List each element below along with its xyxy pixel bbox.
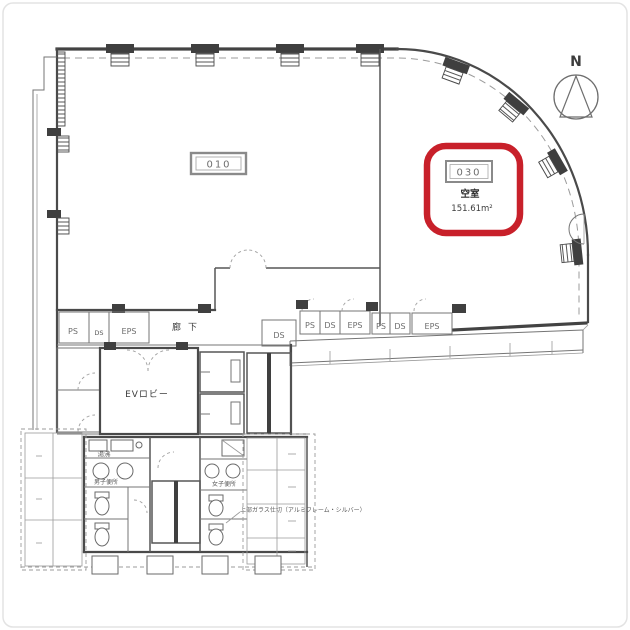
womens-toilet-label: 女子便所 xyxy=(212,480,236,488)
mens-toilet-label: 男子便所 xyxy=(94,478,118,486)
staircase-lower xyxy=(152,452,200,543)
double-door-arc xyxy=(230,250,248,268)
kitchenette: 湯沸 xyxy=(84,440,150,458)
partition-note-text: 上部ガラス仕切（アルミフレーム・シルバー） xyxy=(240,506,366,514)
compass-needle xyxy=(560,76,592,117)
utility-label-eps: EPS xyxy=(348,321,363,330)
utility-label-ds: DS xyxy=(394,322,405,331)
mens-toilet: 男子便所 xyxy=(84,463,150,552)
floor-plan-image: PS DS EPS 廊下 DS PS DS EPS PS DS EPS xyxy=(0,0,630,630)
duct-label-ds: DS xyxy=(273,331,284,340)
unit-area: 151.61m² xyxy=(451,204,492,214)
tenant-partitions xyxy=(215,49,380,326)
elevator-shaft xyxy=(200,394,244,434)
utility-label-ps: PS xyxy=(68,327,78,336)
vacant-unit-highlight[interactable]: 030 空室 151.61m² xyxy=(427,146,520,233)
elevator-core: EVロビー xyxy=(57,342,307,434)
double-door-arc xyxy=(248,250,266,268)
utility-label-ps: PS xyxy=(305,321,315,330)
window-mullions-top xyxy=(106,44,384,66)
room-label-010: 010 xyxy=(191,153,246,174)
ev-lobby-label: EVロビー xyxy=(125,389,169,400)
bottom-edge xyxy=(21,556,313,574)
floor-plan-drawing: PS DS EPS 廊下 DS PS DS EPS PS DS EPS xyxy=(0,0,630,630)
exterior-grid-left xyxy=(21,429,86,570)
utility-label-eps: EPS xyxy=(122,327,137,336)
womens-toilet: 女子便所 xyxy=(200,459,247,545)
north-label: N xyxy=(570,54,582,70)
kitchenette-label: 湯沸 xyxy=(98,449,112,458)
room-number: 010 xyxy=(206,160,231,171)
vacant-unit-number: 030 xyxy=(456,168,481,179)
lower-core: 湯沸 男子便所 女 xyxy=(84,437,366,567)
utility-label-eps: EPS xyxy=(425,322,440,331)
balcony-walkway xyxy=(290,325,588,366)
utility-label-ds: DS xyxy=(324,321,335,330)
curtain-wall-dashed-line xyxy=(63,58,579,318)
staircase-upper xyxy=(247,353,291,433)
core-band: PS DS EPS 廊下 DS PS DS EPS PS DS EPS xyxy=(57,299,586,346)
compass-circle xyxy=(554,75,598,119)
corridor-label: 廊下 xyxy=(172,321,204,333)
elevator-shaft xyxy=(200,352,244,392)
vacancy-status: 空室 xyxy=(460,188,480,200)
utility-label-ds: DS xyxy=(94,329,103,337)
north-compass: N xyxy=(554,54,598,119)
utility-label-ps: PS xyxy=(376,322,386,331)
exterior-grid-right xyxy=(243,434,315,570)
